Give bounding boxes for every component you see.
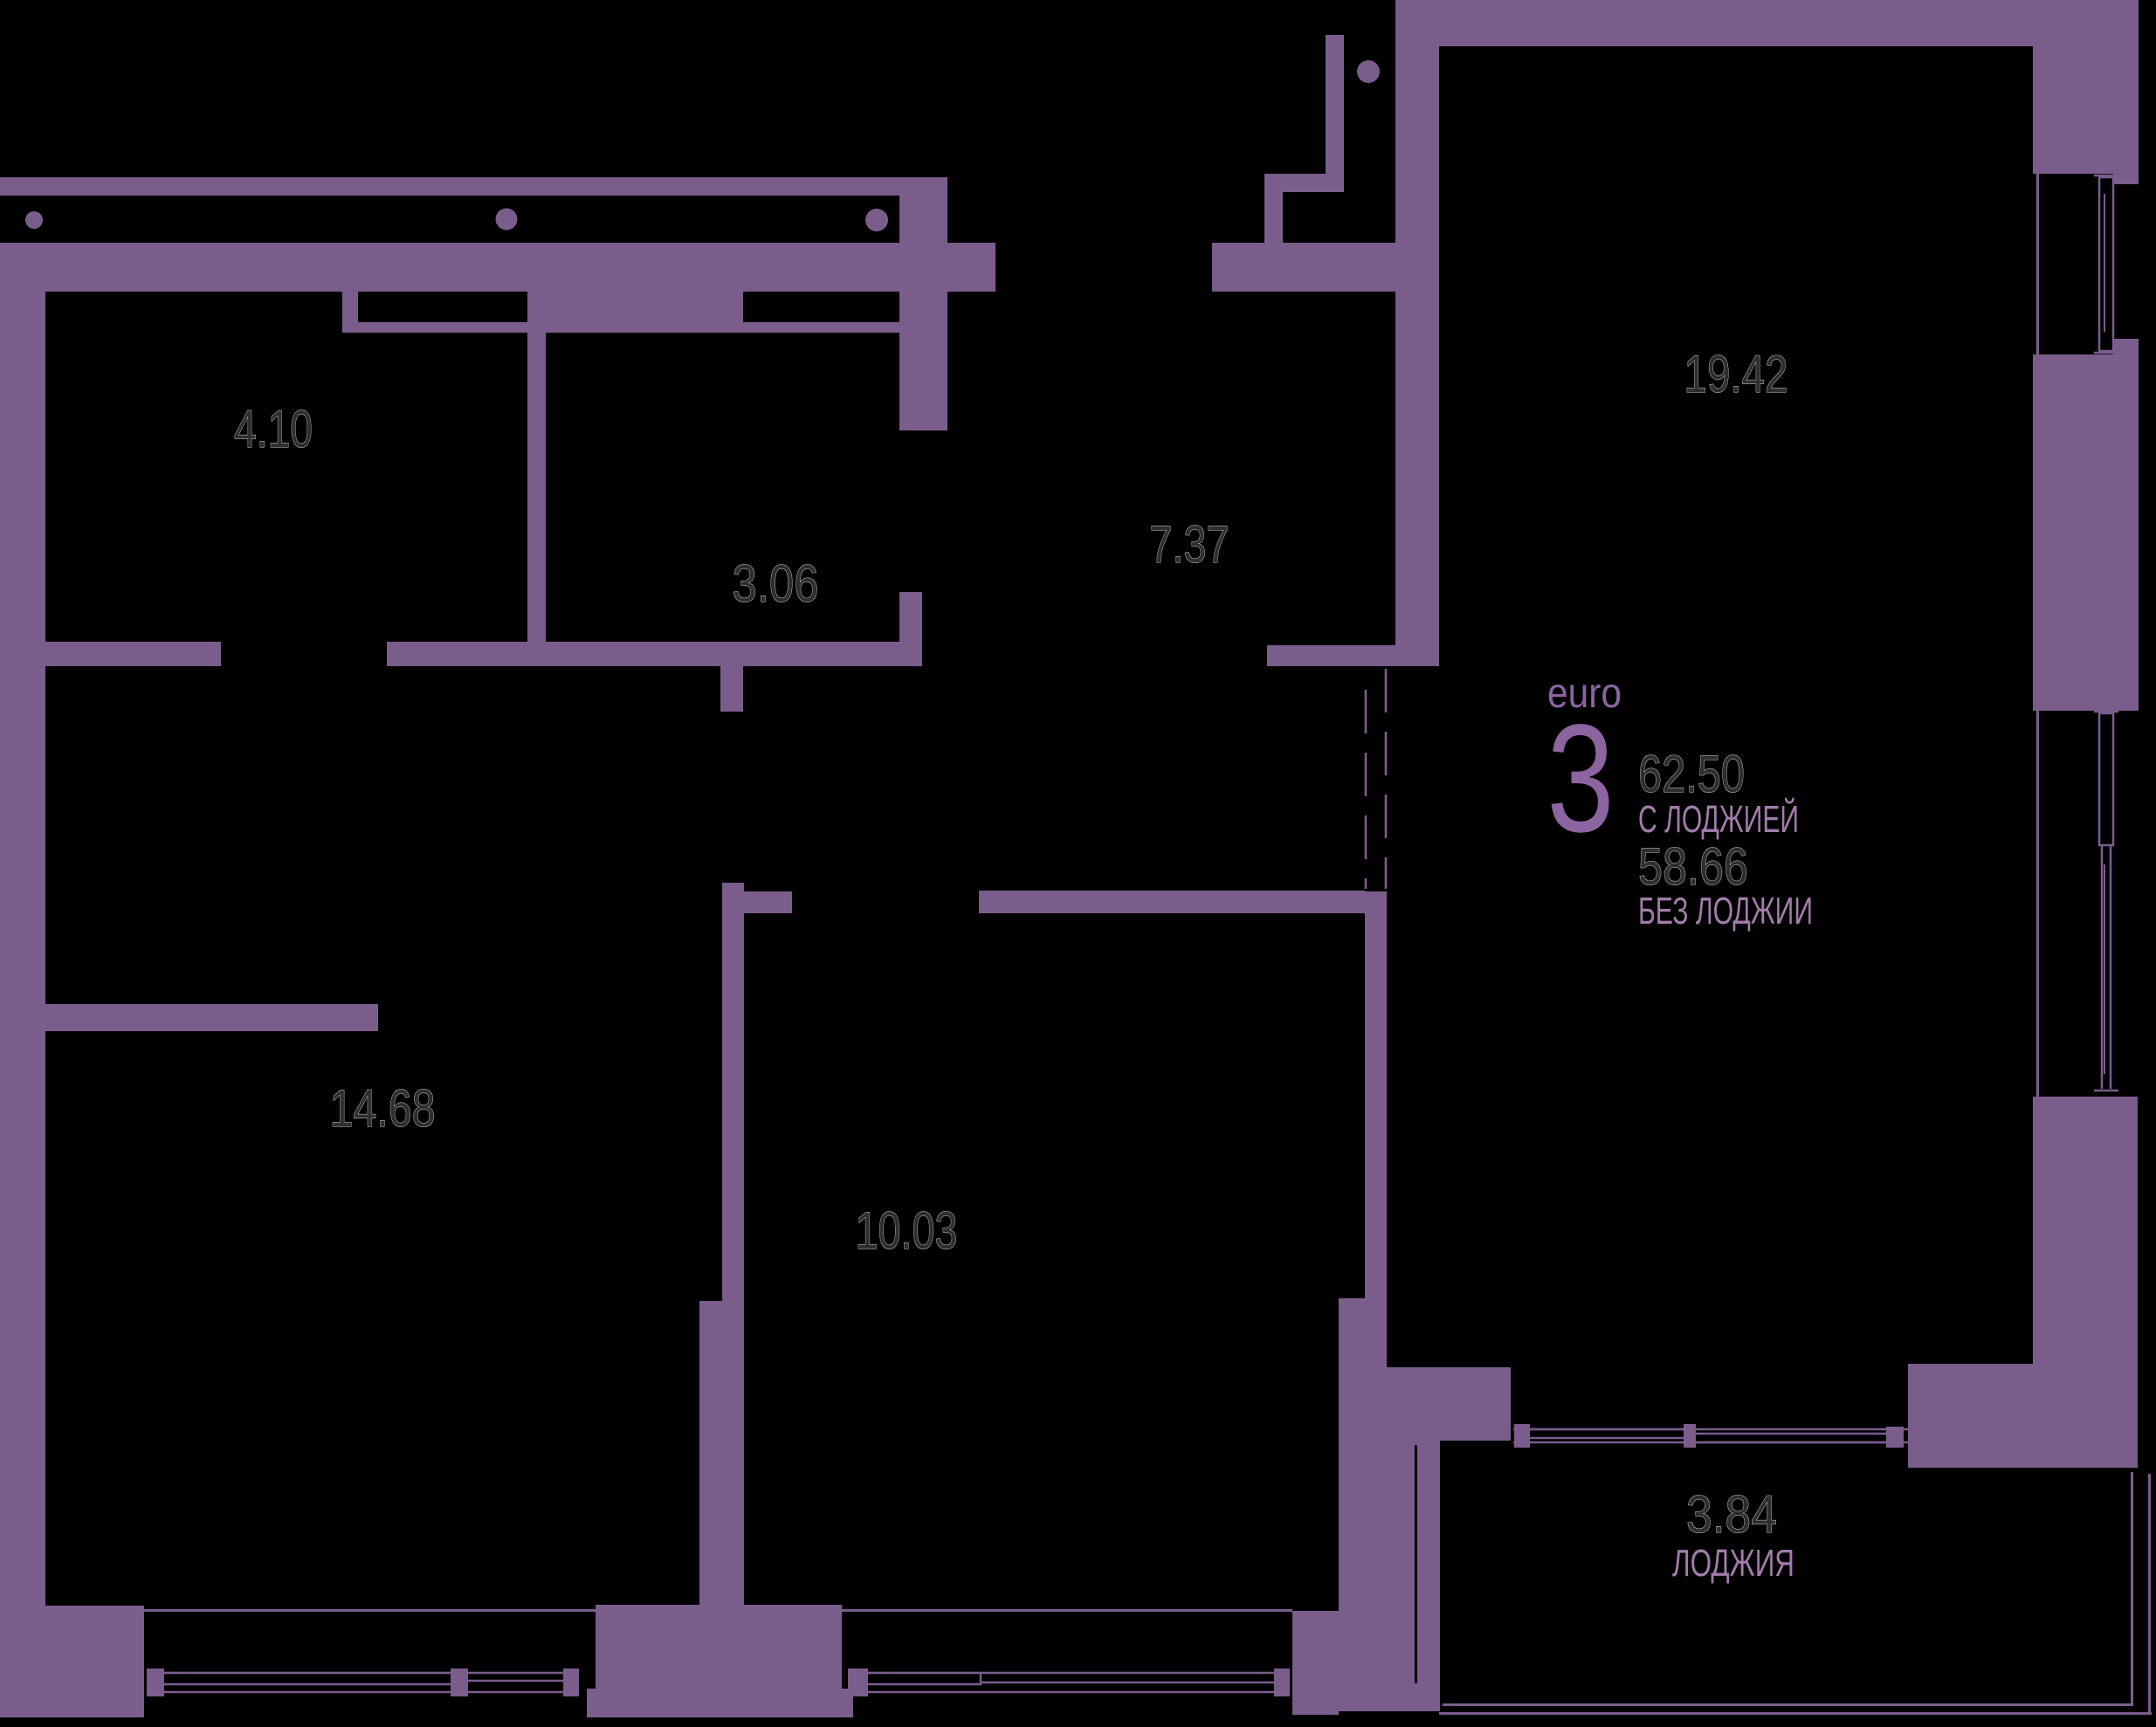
svg-text:ЛОДЖИЯ: ЛОДЖИЯ bbox=[1672, 1542, 1794, 1585]
svg-text:10.03: 10.03 bbox=[856, 1201, 958, 1260]
svg-text:19.42: 19.42 bbox=[1684, 345, 1788, 403]
svg-text:С ЛОДЖИЕЙ: С ЛОДЖИЕЙ bbox=[1638, 796, 1799, 841]
svg-text:4.10: 4.10 bbox=[234, 400, 313, 458]
svg-text:58.66: 58.66 bbox=[1638, 837, 1748, 896]
svg-text:3.84: 3.84 bbox=[1686, 1485, 1777, 1544]
svg-text:7.37: 7.37 bbox=[1150, 515, 1230, 574]
svg-text:3: 3 bbox=[1546, 691, 1614, 864]
svg-text:БЕЗ ЛОДЖИИ: БЕЗ ЛОДЖИИ bbox=[1638, 890, 1813, 932]
svg-text:3.06: 3.06 bbox=[733, 554, 819, 613]
svg-text:14.68: 14.68 bbox=[330, 1079, 436, 1138]
svg-text:62.50: 62.50 bbox=[1638, 745, 1745, 803]
